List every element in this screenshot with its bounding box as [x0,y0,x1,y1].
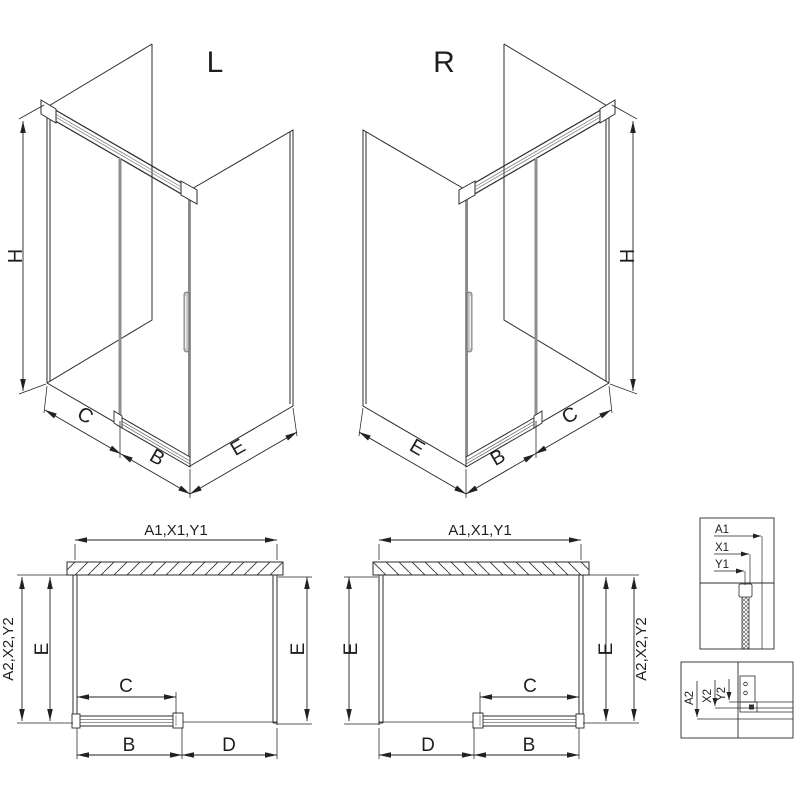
dim-e-right-label-planr: E [596,643,617,656]
dim-e-label-left: E [227,435,250,461]
iso-right-geometry [359,44,637,498]
iso-view-left: L H C B E [5,44,297,498]
detail-box [700,518,774,649]
detail-x2-label: X2 [702,689,714,703]
detail-x1-label: X1 [715,542,729,554]
plan-left-geometry [17,540,312,759]
plan-view-right: A1,X1,Y1 A2,X2,Y2 E E C D B [341,522,650,759]
dim-c-label-planr: C [523,676,537,697]
detail-y1-label: Y1 [715,559,729,571]
iso-left-geometry [19,44,297,498]
glass-clamp-profile [739,584,752,597]
technical-drawing-canvas: L H C B E R H C B E A1,X1,Y1 A2,X2,Y2 E … [0,0,800,800]
iso-left-label: L [207,46,224,79]
dim-e-left-label-planr: E [341,643,362,656]
dim-e-right-label-planl: E [288,643,309,656]
iso-view-right: R H C B E [359,44,639,498]
dim-b-label-planl: B [123,735,136,756]
dim-b-label-planr: B [523,735,536,756]
dim-h-label-left: H [5,249,27,263]
dim-a2x2y2-label-right: A2,X2,Y2 [633,617,650,680]
detail-a1-label: A1 [715,524,729,536]
dim-d-label-planr: D [421,735,435,756]
plan-view-left: A1,X1,Y1 A2,X2,Y2 E E C B D [0,522,312,759]
detail-y2-label: Y2 [716,687,728,701]
dim-c-label-right: C [558,403,582,429]
dim-a1x1y1-label-right: A1,X1,Y1 [448,522,511,539]
dim-c-label-planl: C [119,676,133,697]
dim-b-label-right: B [487,445,510,471]
detail-view-floor-profile: A2 X2 Y2 [681,662,793,738]
rail-section-profile [740,676,757,712]
detail-box [681,662,793,738]
dim-h-label-right: H [617,249,639,263]
dim-d-label-planl: D [222,735,236,756]
detail-view-wall-profile: A1 X1 Y1 [700,518,774,649]
dim-a1x1y1-label-left: A1,X1,Y1 [144,522,207,539]
dim-e-label-right: E [406,435,429,461]
detail-a2-label: A2 [684,691,696,705]
dim-c-label-left: C [73,403,97,429]
dim-b-label-left: B [146,445,169,471]
iso-right-label: R [433,46,455,79]
dim-a2x2y2-label-left: A2,X2,Y2 [0,617,17,680]
plan-right-geometry [344,540,639,759]
drawing-sheet: L H C B E R H C B E A1,X1,Y1 A2,X2,Y2 E … [0,0,800,800]
dim-e-left-label-planl: E [32,643,53,656]
